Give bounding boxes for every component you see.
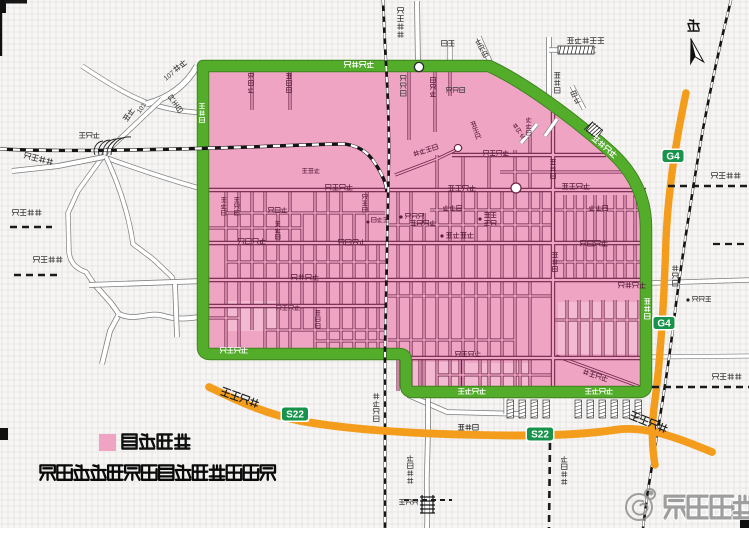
svg-text:G4: G4 [666,152,680,163]
svg-text:S22: S22 [286,410,304,421]
svg-text:G4: G4 [657,319,671,330]
svg-text:S22: S22 [531,430,549,441]
